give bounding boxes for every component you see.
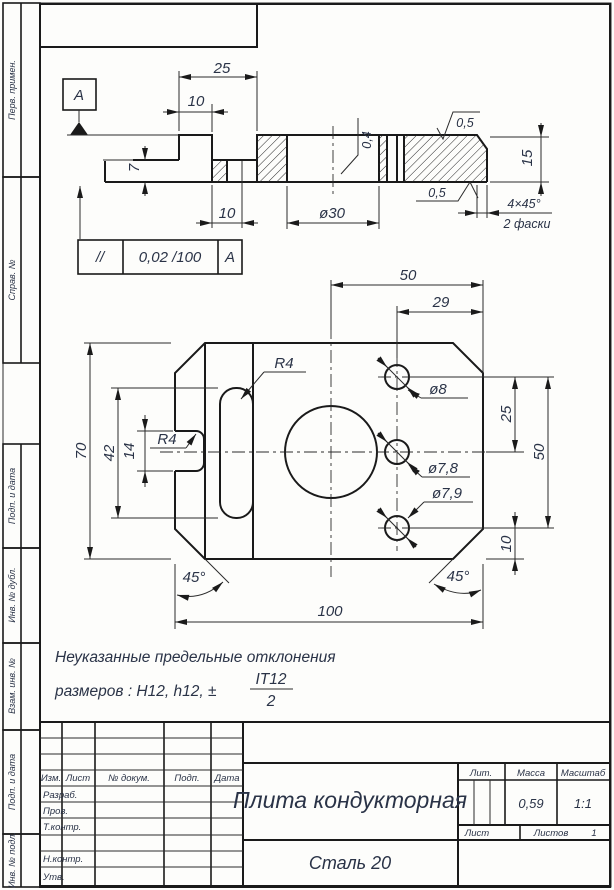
plan-dimensions: 50 29 70 42 14 100 [73, 267, 554, 629]
dim-50-right: 50 [531, 443, 548, 460]
tb-col-date: Дата [213, 773, 239, 784]
tb-mass-label: Масса [517, 768, 545, 779]
angle-45-left: 45° [183, 569, 206, 586]
margin-label-sprav-no: Справ. № [7, 259, 17, 300]
chamfer-note: 2 фаски [503, 217, 551, 231]
note-line-2: размеров : H12, h12, ± [54, 683, 217, 700]
section-view: А [63, 60, 552, 274]
dim-chamfer: 4×45° [507, 197, 540, 211]
note-fraction-denominator: 2 [266, 693, 276, 710]
plan-outline [160, 326, 508, 577]
tb-sheets-value: 1 [591, 828, 596, 839]
roughness-05-bottom: 0,5 [428, 186, 445, 200]
tb-row-razrab: Разраб. [43, 790, 77, 801]
note-fraction-numerator: IT12 [255, 671, 286, 688]
part-title: Плита кондукторная [233, 787, 467, 813]
margin-label-vzam-inv: Взам. инв. № [7, 658, 17, 714]
dim-15: 15 [519, 149, 536, 166]
datum-label: А [73, 87, 84, 104]
tb-sheet-label: Лист [464, 828, 490, 839]
margin-label-inv-dubl: Инв. № дубл. [7, 567, 17, 622]
tolerance-note: Неуказанные предельные отклонения размер… [54, 649, 336, 710]
angle-45-right: 45° [447, 568, 470, 585]
note-line-1: Неуказанные предельные отклонения [55, 649, 336, 666]
dim-50-top: 50 [400, 267, 417, 284]
part-material: Сталь 20 [309, 853, 391, 873]
tb-col-list: Лист [65, 773, 91, 784]
tb-lit-label: Лит. [469, 768, 492, 779]
tb-mass-value: 0,59 [518, 796, 543, 811]
tolerance-symbol: // [95, 249, 106, 266]
roughness-04: 0,4 [360, 131, 374, 148]
tolerance-frame: // 0,02 /100 А [78, 186, 242, 274]
tb-row-tkontr: Т.контр. [43, 822, 81, 833]
top-stamp [40, 4, 257, 47]
drawing-sheet: Перв. примен. Справ. № Подп. и дата Инв.… [0, 0, 614, 890]
title-block: Изм. Лист № докум. Подп. Дата Разраб. Пр… [40, 722, 610, 886]
dim-10-top: 10 [188, 93, 205, 110]
margin-label-inv-podl: Инв. № подл. [7, 832, 17, 888]
dim-25-right: 25 [498, 405, 515, 423]
dia-8-label: ø8 [429, 381, 447, 398]
tb-col-doc: № докум. [108, 773, 150, 784]
margin-label-podp-data-1: Подп. и дата [7, 468, 17, 524]
tb-scale-value: 1:1 [574, 796, 592, 811]
margin-column: Перв. примен. Справ. № Подп. и дата Инв.… [3, 3, 40, 888]
dim-100: 100 [317, 603, 343, 620]
tb-sheets-label: Листов [533, 828, 569, 839]
tb-col-podp: Подп. [174, 773, 199, 784]
roughness-05-top: 0,5 [456, 116, 473, 130]
tb-row-utv: Утв. [42, 872, 65, 883]
radius-r4-notch: R4 [157, 431, 176, 448]
dia-79-label: ø7,9 [432, 485, 463, 502]
tb-row-prov: Пров. [43, 806, 68, 817]
plan-view: 50 29 70 42 14 100 [73, 267, 554, 629]
tb-scale-label: Масштаб [561, 768, 606, 779]
dim-10-right: 10 [498, 535, 515, 552]
tolerance-value: 0,02 /100 [139, 249, 202, 266]
tb-row-nkontr: Н.контр. [43, 854, 83, 865]
datum-triangle-icon [70, 122, 88, 135]
tolerance-datum: А [224, 249, 235, 266]
tb-col-izm: Изм. [41, 773, 61, 784]
radius-r4-slot: R4 [274, 355, 293, 372]
dim-25-section: 25 [213, 60, 231, 77]
dim-42: 42 [101, 444, 118, 461]
margin-label-perv-primen: Перв. примен. [7, 60, 17, 120]
dim-dia30: ø30 [319, 205, 346, 222]
dim-7: 7 [126, 163, 143, 172]
dia-78-label: ø7,8 [428, 460, 459, 477]
dim-70: 70 [73, 442, 90, 459]
datum-flag: А [63, 79, 96, 135]
dim-10-bottom: 10 [219, 205, 236, 222]
margin-label-podp-data-2: Подп. и дата [7, 754, 17, 810]
dim-14: 14 [121, 443, 138, 460]
dim-29: 29 [432, 294, 450, 311]
